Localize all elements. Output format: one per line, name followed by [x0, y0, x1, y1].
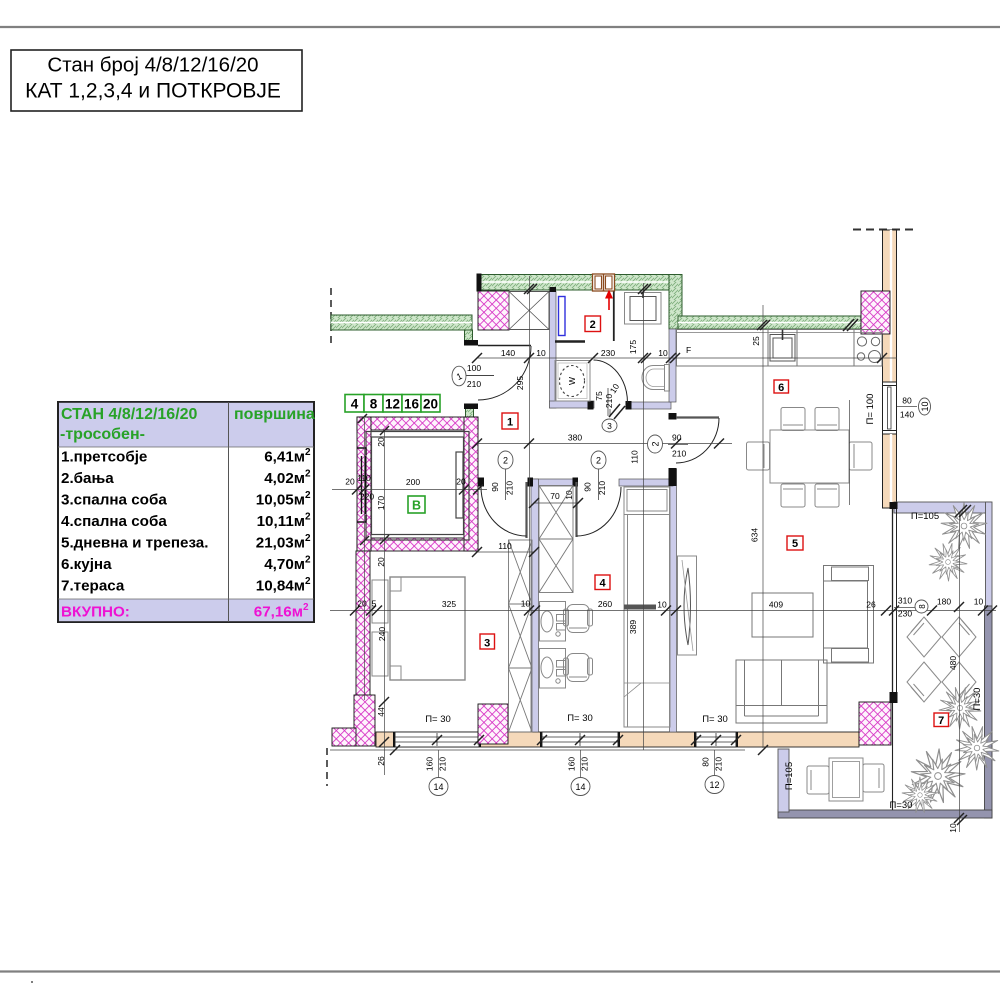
svg-text:6.кујна: 6.кујна — [61, 556, 112, 573]
svg-text:2: 2 — [305, 447, 311, 458]
svg-text:210: 210 — [604, 394, 614, 408]
svg-text:10: 10 — [920, 401, 930, 411]
svg-text:14: 14 — [433, 782, 443, 792]
svg-text:2: 2 — [590, 319, 596, 331]
svg-text:80: 80 — [701, 757, 711, 767]
svg-text:10: 10 — [536, 348, 546, 358]
svg-text:8: 8 — [918, 604, 927, 609]
svg-text:20: 20 — [456, 477, 466, 487]
svg-text:67,16м: 67,16м — [254, 604, 303, 621]
svg-text:26: 26 — [866, 600, 876, 610]
svg-text:-трособен-: -трособен- — [60, 426, 145, 443]
svg-text:409: 409 — [769, 600, 783, 610]
svg-text:110: 110 — [630, 450, 640, 464]
svg-text:110: 110 — [357, 473, 371, 483]
svg-text:20: 20 — [376, 557, 386, 567]
svg-text:10: 10 — [564, 490, 574, 500]
svg-text:површина: површина — [234, 406, 315, 423]
svg-text:10: 10 — [657, 600, 667, 610]
svg-text:2: 2 — [596, 456, 601, 466]
svg-text:26: 26 — [376, 756, 386, 766]
svg-text:П= 30: П= 30 — [567, 713, 593, 724]
svg-text:F: F — [686, 345, 691, 355]
svg-text:20: 20 — [345, 477, 355, 487]
svg-text:2: 2 — [305, 576, 311, 587]
svg-text:210: 210 — [714, 757, 724, 771]
svg-text:4.спална соба: 4.спална соба — [61, 513, 167, 530]
svg-text:90: 90 — [490, 482, 500, 492]
svg-text:10,84м: 10,84м — [256, 578, 305, 595]
svg-text:20: 20 — [357, 599, 367, 609]
svg-text:10: 10 — [521, 599, 531, 609]
svg-text:210: 210 — [672, 449, 686, 459]
svg-text:6,41м: 6,41м — [264, 449, 305, 466]
svg-text:175: 175 — [628, 340, 638, 354]
svg-text:2: 2 — [503, 456, 508, 466]
svg-text:2: 2 — [651, 441, 661, 446]
svg-text:5: 5 — [792, 538, 798, 550]
svg-text:389: 389 — [628, 620, 638, 634]
svg-text:140: 140 — [900, 410, 914, 420]
svg-text:230: 230 — [898, 609, 912, 619]
svg-text:10: 10 — [974, 597, 984, 607]
svg-text:4: 4 — [351, 397, 359, 412]
svg-text:21,03м: 21,03м — [256, 535, 305, 552]
svg-text:210: 210 — [597, 481, 607, 495]
svg-text:10,11м: 10,11м — [257, 513, 305, 530]
svg-text:12: 12 — [385, 397, 400, 412]
svg-text:230: 230 — [601, 348, 615, 358]
svg-text:КАТ 1,2,3,4 и ПОТКРОВЈЕ: КАТ 1,2,3,4 и ПОТКРОВЈЕ — [25, 80, 281, 103]
svg-text:14: 14 — [575, 782, 585, 792]
svg-text:4,02м: 4,02м — [264, 470, 305, 487]
svg-text:634: 634 — [750, 528, 760, 542]
svg-text:П= 30: П= 30 — [425, 714, 451, 725]
svg-text:2: 2 — [305, 512, 311, 523]
svg-text:СТАН 4/8/12/16/20: СТАН 4/8/12/16/20 — [61, 406, 198, 423]
svg-text:295: 295 — [515, 376, 525, 390]
svg-text:20: 20 — [376, 437, 386, 447]
svg-text:210: 210 — [580, 757, 590, 771]
svg-text:180: 180 — [937, 597, 951, 607]
svg-text:4: 4 — [599, 578, 606, 590]
svg-text:5.дневна и трепеза.: 5.дневна и трепеза. — [61, 535, 208, 552]
svg-text:380: 380 — [568, 433, 582, 443]
svg-text:4,70м: 4,70м — [264, 556, 305, 573]
svg-text:260: 260 — [598, 599, 612, 609]
svg-text:10: 10 — [658, 348, 668, 358]
svg-text:2.бања: 2.бања — [61, 470, 114, 487]
svg-text:5: 5 — [372, 599, 377, 609]
svg-text:2: 2 — [303, 602, 309, 613]
svg-text:Стан број 4/8/12/16/20: Стан број 4/8/12/16/20 — [47, 54, 258, 77]
svg-text:П=30: П=30 — [890, 800, 913, 811]
svg-text:8: 8 — [370, 397, 378, 412]
svg-text:7: 7 — [938, 715, 944, 727]
svg-text:1: 1 — [507, 417, 513, 429]
svg-text:2: 2 — [305, 490, 311, 501]
svg-text:3: 3 — [607, 421, 612, 431]
svg-text:16: 16 — [404, 397, 420, 412]
svg-text:П=30: П=30 — [972, 688, 983, 711]
svg-text:480: 480 — [948, 656, 958, 670]
svg-text:90: 90 — [583, 482, 593, 492]
svg-text:W: W — [567, 377, 577, 385]
svg-text:80: 80 — [902, 396, 912, 406]
svg-text:П= 100: П= 100 — [865, 394, 876, 425]
svg-text:70: 70 — [550, 491, 560, 501]
svg-text:П=105: П=105 — [784, 762, 795, 790]
svg-text:75: 75 — [594, 391, 604, 401]
svg-text:210: 210 — [467, 379, 481, 389]
svg-text:3: 3 — [484, 638, 490, 650]
svg-text:6: 6 — [778, 382, 784, 394]
svg-text:2: 2 — [305, 555, 311, 566]
svg-text:2: 2 — [305, 533, 311, 544]
svg-text:1.претсобје: 1.претсобје — [61, 449, 147, 466]
svg-text:240: 240 — [377, 627, 387, 641]
svg-text:20: 20 — [423, 397, 438, 412]
svg-text:220: 220 — [360, 492, 374, 502]
svg-text:200: 200 — [406, 477, 420, 487]
svg-text:2: 2 — [305, 469, 311, 480]
svg-text:7.тераса: 7.тераса — [61, 578, 125, 595]
svg-text:П= 30: П= 30 — [702, 714, 728, 725]
svg-text:170: 170 — [376, 496, 386, 510]
svg-text:B: B — [412, 499, 421, 513]
svg-text:310: 310 — [898, 596, 912, 606]
svg-text:210: 210 — [505, 481, 515, 495]
svg-text:12: 12 — [709, 780, 719, 790]
svg-text:325: 325 — [442, 599, 456, 609]
svg-text:ВКУПНО:: ВКУПНО: — [61, 604, 130, 621]
svg-text:160: 160 — [425, 757, 435, 771]
svg-text:10,05м: 10,05м — [256, 492, 305, 509]
svg-text:25: 25 — [751, 336, 761, 346]
svg-text:90: 90 — [672, 433, 682, 443]
svg-text:10: 10 — [948, 823, 958, 833]
svg-text:3.спална соба: 3.спална соба — [61, 492, 167, 509]
svg-text:140: 140 — [501, 348, 515, 358]
svg-text:110: 110 — [498, 541, 512, 551]
svg-text:44: 44 — [376, 707, 386, 717]
svg-text:210: 210 — [438, 757, 448, 771]
svg-text:100: 100 — [467, 363, 481, 373]
svg-text:П=105: П=105 — [911, 511, 939, 522]
svg-text:160: 160 — [567, 757, 577, 771]
